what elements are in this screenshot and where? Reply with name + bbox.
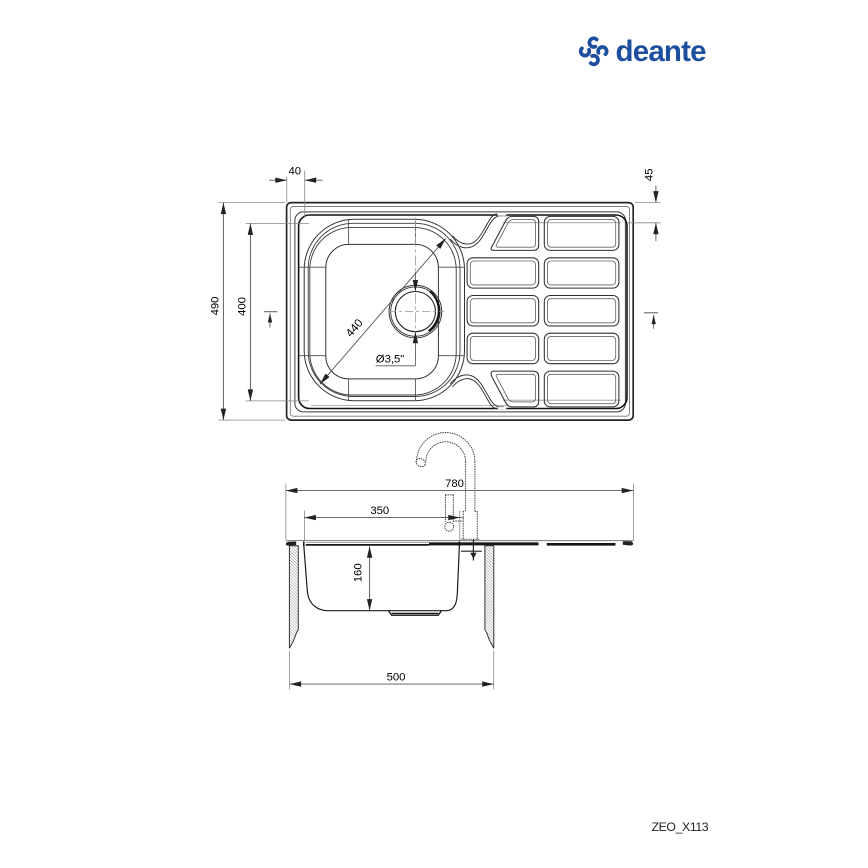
svg-text:160: 160: [352, 563, 364, 582]
svg-text:350: 350: [370, 505, 389, 517]
svg-text:490: 490: [209, 297, 221, 316]
svg-text:440: 440: [343, 317, 365, 340]
svg-text:Ø3,5": Ø3,5": [376, 354, 405, 366]
svg-text:500: 500: [387, 671, 406, 683]
svg-text:780: 780: [445, 478, 464, 490]
svg-text:deante: deante: [616, 35, 707, 68]
svg-text:400: 400: [236, 297, 248, 316]
svg-text:45: 45: [644, 169, 656, 182]
svg-text:40: 40: [289, 166, 302, 178]
svg-text:ZEO_X113: ZEO_X113: [652, 820, 709, 834]
